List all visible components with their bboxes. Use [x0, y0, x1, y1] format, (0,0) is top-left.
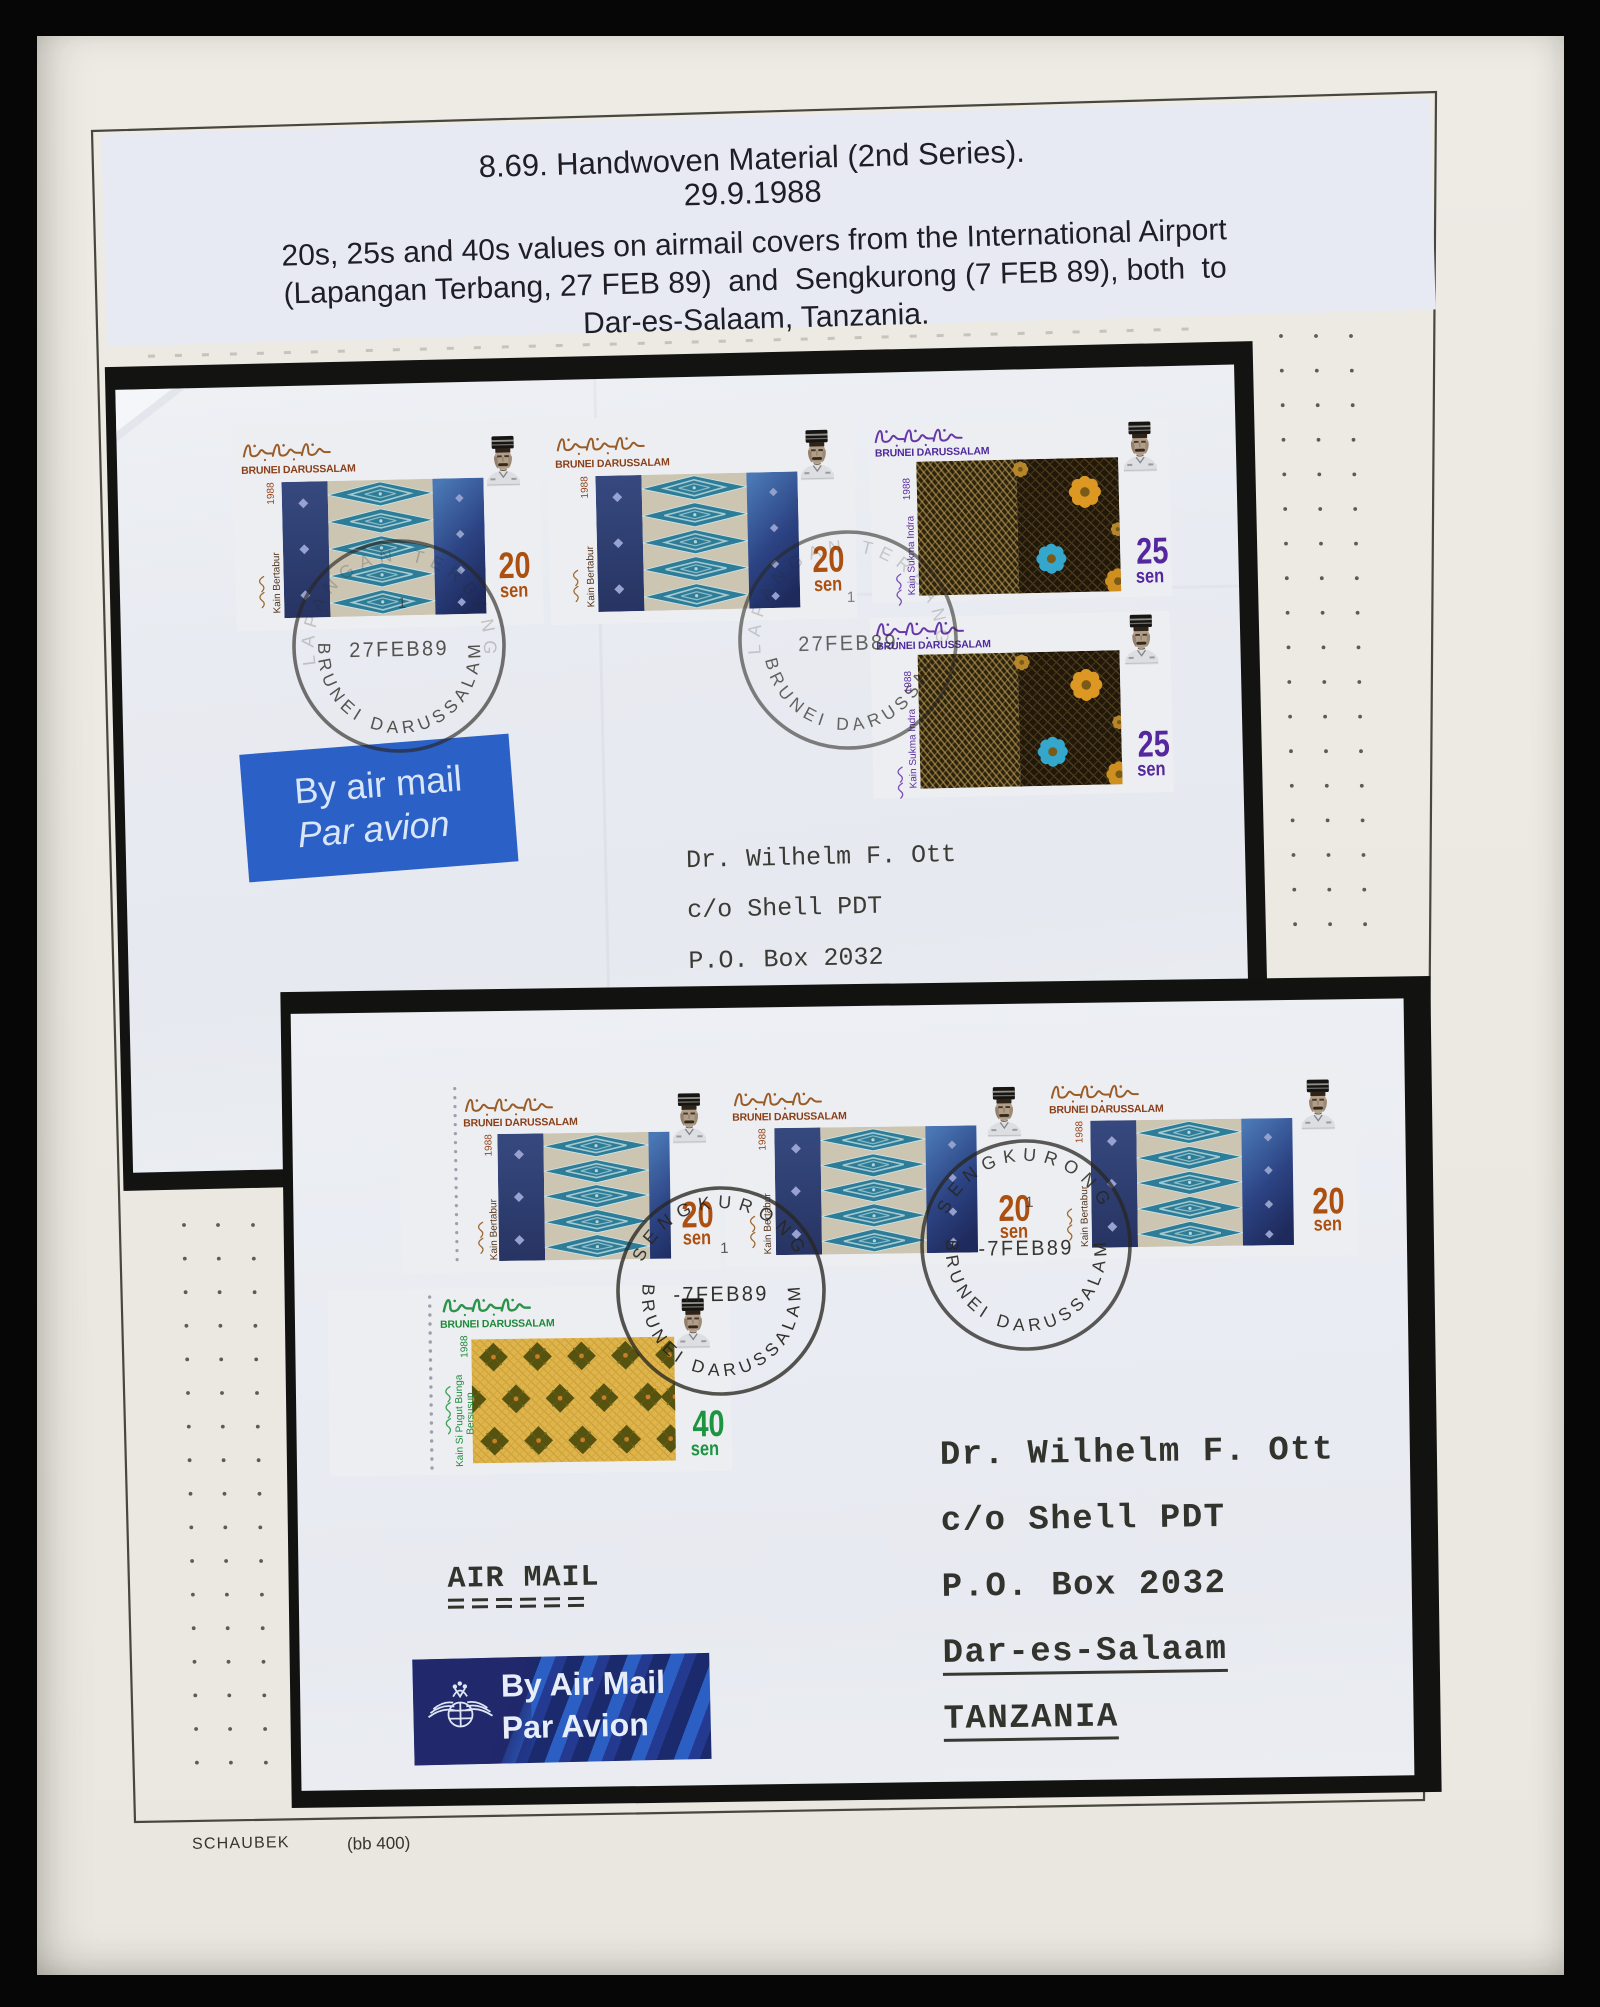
svg-text:27FEB89: 27FEB89	[798, 630, 898, 656]
svg-text:1: 1	[847, 589, 856, 606]
svg-text:-7FEB89: -7FEB89	[978, 1236, 1074, 1261]
svg-text:1: 1	[1025, 1194, 1034, 1211]
svg-text:BRUNEI DARUSSAL: BRUNEI DARUSSAL	[761, 652, 938, 736]
svg-text:1: 1	[398, 595, 407, 612]
svg-text:27FEB89: 27FEB89	[349, 636, 449, 662]
svg-text:1: 1	[720, 1240, 729, 1257]
svg-text:-7FEB89: -7FEB89	[673, 1282, 769, 1307]
